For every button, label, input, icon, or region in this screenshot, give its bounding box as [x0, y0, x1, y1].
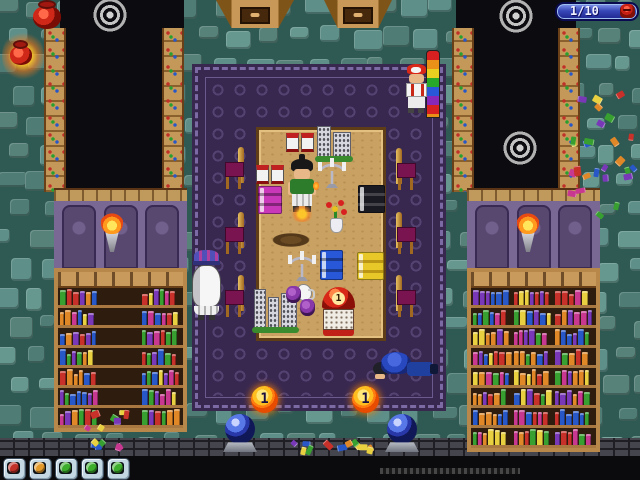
- book-spine: [514, 370, 519, 385]
- drawer: [343, 7, 373, 24]
- book-spine: [546, 390, 552, 405]
- shelf-section: [60, 348, 99, 365]
- book-spine: [88, 313, 94, 325]
- shelf-section: [60, 388, 99, 405]
- chair-seat: [397, 290, 416, 305]
- book-spine: [521, 389, 526, 405]
- shelf-row: [58, 368, 183, 388]
- book-spine: [547, 313, 551, 325]
- floor-stone: [28, 346, 45, 363]
- spilled-book: [290, 439, 298, 447]
- shelf-row: [471, 328, 596, 348]
- shelf-row: [58, 328, 183, 348]
- book-spine: [92, 331, 96, 345]
- foot: [198, 315, 204, 320]
- book-spine: [162, 313, 166, 325]
- shelf-section: [60, 368, 99, 385]
- chef-npc[interactable]: [191, 250, 222, 322]
- book-spine: [534, 310, 539, 325]
- book-spine: [579, 434, 585, 445]
- book-spine: [530, 429, 536, 445]
- book-spine: [92, 291, 97, 305]
- book-spine: [520, 310, 526, 325]
- shelf-row: [471, 308, 596, 328]
- face: [409, 74, 424, 83]
- shelf-section: [142, 328, 181, 345]
- shelf-section: [473, 288, 512, 305]
- face: [294, 169, 310, 179]
- black-book[interactable]: [358, 185, 385, 213]
- book-spine: [505, 373, 509, 385]
- shelf-section: [473, 308, 512, 325]
- shelf-section: [142, 348, 181, 365]
- book-spine: [161, 330, 165, 345]
- page-edge: [322, 252, 326, 278]
- book-spine: [495, 313, 500, 325]
- floor-stone: [401, 0, 427, 18]
- toolbar-button-green-3[interactable]: [107, 458, 130, 480]
- book-spine: [585, 370, 589, 385]
- book-spine: [60, 349, 66, 365]
- toolbar-button-green-1[interactable]: [55, 458, 78, 480]
- book-spine: [473, 332, 478, 345]
- shelf-section: [60, 328, 99, 345]
- spilled-book: [366, 447, 374, 455]
- red-pot[interactable]: [31, 0, 63, 30]
- floor-stone: [0, 112, 18, 129]
- purple-book[interactable]: [258, 186, 282, 214]
- shelf-top: [471, 272, 596, 288]
- book-spine: [582, 352, 588, 365]
- book-spine: [494, 393, 500, 405]
- castle-model[interactable]: [317, 126, 351, 158]
- book-spine: [142, 410, 148, 425]
- book-spine: [533, 412, 537, 425]
- book-spine: [544, 431, 549, 445]
- book-spine: [514, 332, 518, 345]
- book-spine: [561, 431, 567, 445]
- page-edge: [360, 187, 364, 211]
- book-spine: [555, 391, 559, 405]
- book-stack[interactable]: [286, 133, 314, 152]
- chair: [394, 148, 418, 190]
- register-display: 1: [332, 292, 345, 305]
- book-spine: [486, 372, 492, 385]
- book-spine: [585, 332, 589, 345]
- floor-stone: [0, 347, 16, 364]
- book-spine: [478, 394, 482, 405]
- book-spine: [159, 370, 163, 385]
- wall-panel: [475, 205, 509, 269]
- spilled-book: [604, 113, 616, 124]
- dirt-patch: [272, 233, 310, 247]
- book-spine: [491, 292, 495, 305]
- crystal-orb[interactable]: [381, 414, 423, 456]
- shelf-row: [471, 288, 596, 308]
- purple-jar[interactable]: [300, 299, 315, 316]
- floor-stone: [598, 263, 619, 283]
- floor-stone: [634, 375, 640, 394]
- candelabra-icon: [284, 250, 320, 282]
- book-spine: [483, 392, 487, 405]
- book-spine: [91, 372, 96, 385]
- spilled-book: [322, 439, 333, 450]
- pot-rim: [38, 0, 56, 9]
- book-spine: [152, 352, 157, 365]
- circle-emblem-icon: [498, 126, 542, 170]
- shelf-section: [60, 288, 99, 305]
- book-spine: [494, 351, 498, 365]
- book-spine: [555, 371, 561, 385]
- book-spine: [531, 352, 536, 365]
- book-spine: [573, 429, 578, 445]
- book-spine: [544, 351, 548, 365]
- book-spine: [562, 353, 568, 365]
- button-well: [33, 462, 46, 474]
- shelf-section: [514, 328, 553, 345]
- spilled-book: [614, 202, 620, 211]
- book-spine: [562, 310, 567, 325]
- book-spine: [581, 311, 587, 325]
- book-spine: [567, 334, 572, 345]
- shelf-section: [142, 408, 181, 425]
- book-spine: [142, 330, 146, 345]
- shelf-section: [473, 328, 512, 345]
- blue-book[interactable]: [320, 250, 343, 280]
- chair: [222, 275, 246, 317]
- book-band: [258, 193, 282, 196]
- chair-leg: [410, 178, 413, 190]
- book-spine: [70, 394, 76, 405]
- book-spine: [67, 289, 72, 305]
- floor-stone: [615, 56, 631, 70]
- book-spine: [488, 394, 493, 405]
- book-spine: [555, 314, 561, 325]
- game-window: 1 1: [0, 0, 640, 480]
- chair-leg: [398, 242, 401, 254]
- book-spine: [167, 313, 172, 325]
- book-spine: [555, 329, 560, 345]
- shelf-section: [514, 288, 553, 305]
- foot: [408, 108, 414, 113]
- chair: [394, 212, 418, 254]
- book-spine: [561, 330, 566, 345]
- book-band: [358, 203, 385, 206]
- spilled-book: [90, 410, 101, 420]
- book-spine: [541, 394, 545, 405]
- orb-ball: [225, 414, 255, 444]
- book-spine: [534, 393, 540, 405]
- floor-stone: [634, 321, 640, 340]
- book-spine: [532, 369, 536, 385]
- tower: [333, 132, 351, 158]
- book-spine: [498, 414, 502, 425]
- book-spine: [60, 290, 66, 305]
- book-spine: [501, 389, 506, 405]
- chair-leg: [238, 242, 241, 254]
- toolbar-button-green-2[interactable]: [81, 458, 104, 480]
- chair: [222, 212, 246, 254]
- shelf-section: [555, 288, 594, 305]
- book-band: [320, 269, 343, 272]
- book-spine: [147, 353, 151, 365]
- red-register[interactable]: 1: [321, 287, 356, 337]
- book-spine: [483, 433, 487, 445]
- book-spine: [473, 410, 478, 425]
- wall-panel: [145, 205, 179, 269]
- book-spine: [73, 332, 79, 345]
- book-spine: [79, 370, 83, 385]
- book-spine: [568, 432, 572, 445]
- shelf-section: [514, 388, 553, 405]
- fire-glow: [289, 206, 315, 222]
- book-spine: [60, 371, 66, 385]
- book-spine: [479, 372, 485, 385]
- sleeping-npc[interactable]: [373, 350, 439, 386]
- bookshelf-right: [467, 268, 600, 452]
- book-spine: [519, 330, 523, 345]
- spilled-book: [610, 136, 620, 147]
- floor-stone: [629, 30, 640, 49]
- floor-stone: [0, 288, 19, 309]
- book-spine: [573, 371, 578, 385]
- floor-stone: [428, 0, 452, 12]
- book-spine: [584, 392, 590, 405]
- floor-stone: [259, 27, 278, 43]
- book-spine: [524, 330, 528, 345]
- red-cap-npc[interactable]: [403, 64, 430, 114]
- skirt: [292, 194, 312, 206]
- spilled-book: [615, 90, 625, 99]
- floor-stone: [0, 0, 19, 13]
- book-spine: [538, 412, 542, 425]
- chair-leg: [398, 178, 401, 190]
- toolbar-button-orange[interactable]: [29, 458, 52, 480]
- book-spine: [576, 349, 581, 365]
- book-spine: [501, 432, 506, 445]
- floor-stone: [619, 292, 640, 310]
- book-spine: [495, 430, 500, 445]
- purple-jar[interactable]: [286, 286, 301, 303]
- book-spine: [588, 310, 592, 325]
- book-spine: [514, 393, 520, 405]
- book-spine: [172, 329, 177, 345]
- spilled-book: [603, 174, 610, 181]
- chair-leg: [226, 242, 229, 254]
- flower-icon: [326, 202, 332, 208]
- book-spine: [167, 410, 173, 425]
- book-spine: [72, 410, 78, 425]
- floor-stone: [598, 28, 621, 43]
- spilled-book: [582, 172, 592, 180]
- book-spine: [574, 312, 580, 325]
- floor-stone: [320, 25, 340, 42]
- shelf-row: [58, 388, 183, 408]
- book-spine: [473, 352, 478, 365]
- red-enemy-icon: [620, 4, 635, 18]
- book-spine: [586, 434, 591, 445]
- register-base: [323, 330, 354, 336]
- book-spine: [535, 292, 539, 305]
- floor-stone: [603, 375, 630, 395]
- shelf-section: [555, 308, 594, 325]
- book-spine: [585, 412, 589, 425]
- book-spine: [162, 411, 166, 425]
- book-spine: [86, 292, 91, 305]
- book-spine: [175, 372, 179, 385]
- coin[interactable]: 1: [251, 386, 278, 413]
- spilled-book: [97, 424, 105, 432]
- book-spine: [152, 372, 158, 385]
- spilled-book: [84, 425, 92, 433]
- book-band: [357, 270, 384, 273]
- book-spine: [575, 290, 581, 305]
- glowing-pot[interactable]: [8, 40, 34, 66]
- book-spine: [148, 311, 154, 325]
- gold-book[interactable]: [357, 252, 384, 280]
- book-spine: [537, 374, 542, 385]
- floor-stone: [599, 316, 616, 330]
- lawn: [252, 327, 299, 333]
- crystal-orb[interactable]: [219, 414, 261, 456]
- register-keys: [323, 309, 354, 330]
- toolbar-button-red[interactable]: [3, 458, 26, 480]
- book-spine: [501, 310, 506, 325]
- book-spine: [486, 333, 490, 345]
- book-spine: [154, 289, 159, 305]
- book-spine: [540, 291, 544, 305]
- spilled-book: [596, 120, 606, 129]
- book-spine: [579, 370, 584, 385]
- shelf-section: [514, 428, 553, 445]
- shelf-rows: [471, 288, 596, 448]
- floor-stone: [226, 31, 251, 49]
- taskbar-texture: [380, 468, 520, 474]
- shelf-section: [142, 288, 181, 305]
- book-spine: [155, 391, 159, 405]
- arm: [375, 374, 385, 379]
- book-band: [258, 203, 282, 206]
- spilled-book: [630, 164, 638, 172]
- book-spine: [166, 389, 171, 405]
- book-spine: [568, 310, 573, 325]
- book-spine: [147, 332, 153, 345]
- book-spine: [154, 331, 160, 345]
- shelf-row: [58, 288, 183, 308]
- floor-stone: [0, 172, 27, 187]
- shelf-section: [555, 428, 594, 445]
- status-ball-icon: [34, 462, 45, 473]
- book-spine: [473, 290, 479, 305]
- book-spine: [84, 373, 90, 385]
- book-spine: [555, 432, 560, 445]
- spilled-book: [593, 168, 599, 177]
- book-spine: [479, 351, 483, 365]
- foot: [209, 315, 215, 320]
- floor-stone: [616, 347, 635, 359]
- book-spine: [160, 289, 164, 305]
- floor-stone: [354, 30, 383, 51]
- floor-stone: [290, 27, 310, 39]
- wall-panel: [62, 205, 96, 269]
- book-spine: [88, 393, 92, 405]
- chair: [222, 147, 246, 189]
- book-spill: [84, 408, 132, 434]
- floor-stone: [10, 317, 33, 339]
- spilled-book: [114, 418, 121, 425]
- shelf-section: [473, 388, 512, 405]
- shelf-section: [473, 348, 512, 365]
- book-spine: [567, 390, 572, 405]
- spilled-book: [115, 444, 123, 453]
- book-spine: [527, 311, 533, 325]
- book-spine: [520, 373, 526, 385]
- shelf-pillar: [452, 28, 474, 192]
- book-spine: [67, 369, 73, 385]
- flower-icon: [332, 206, 338, 212]
- book-stack[interactable]: [256, 165, 284, 184]
- book-spine: [479, 329, 485, 345]
- book-spine: [582, 291, 588, 305]
- shelf-section: [514, 308, 553, 325]
- player-character[interactable]: [286, 154, 318, 224]
- flower-vase[interactable]: [322, 200, 348, 232]
- book-spine: [174, 409, 180, 425]
- vase: [330, 218, 343, 233]
- shelf-row: [471, 348, 596, 368]
- book-spine: [486, 412, 492, 425]
- shelf-section: [142, 368, 181, 385]
- book-spine: [578, 391, 583, 405]
- shelf-top: [58, 272, 183, 288]
- book-spine: [149, 293, 153, 305]
- body: [192, 265, 221, 307]
- feet: [430, 364, 438, 374]
- book: [286, 133, 299, 152]
- spilled-book: [595, 210, 605, 219]
- book-spine: [93, 390, 98, 405]
- floor-stone: [10, 199, 30, 216]
- torso: [290, 179, 314, 194]
- book-spine: [86, 333, 91, 345]
- chair-seat: [225, 290, 244, 305]
- cap-patch: [411, 67, 421, 73]
- chair-leg: [238, 305, 241, 317]
- book-spine: [506, 352, 512, 365]
- book-spine: [526, 412, 532, 425]
- book-spine: [540, 313, 546, 325]
- book-spine: [473, 432, 477, 445]
- shelf-row: [471, 428, 596, 448]
- book-spine: [66, 333, 72, 345]
- shelf-section: [514, 348, 553, 365]
- game-viewport[interactable]: 1 1: [0, 0, 640, 456]
- spilled-book: [615, 156, 626, 167]
- shelf-section: [555, 328, 594, 345]
- book-spine: [555, 350, 561, 365]
- shelf-section: [555, 388, 594, 405]
- book-spill: [90, 439, 130, 453]
- chair-leg: [226, 305, 229, 317]
- book-spine: [569, 294, 574, 305]
- coin[interactable]: 1: [352, 386, 379, 413]
- shelf-section: [142, 388, 181, 405]
- book-spine: [172, 354, 176, 365]
- book-spine: [568, 371, 572, 385]
- book-spine: [65, 393, 69, 405]
- torch-flame: [101, 208, 123, 234]
- pot-body: [33, 6, 61, 29]
